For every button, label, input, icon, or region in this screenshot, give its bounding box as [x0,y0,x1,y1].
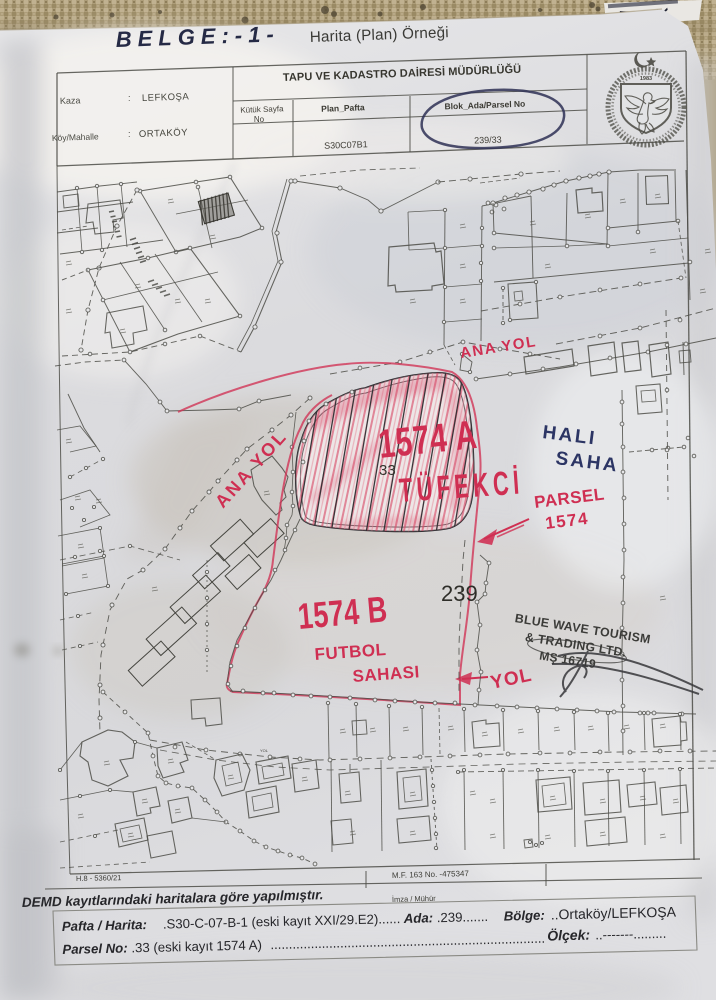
svg-text:.239.......: .239....... [437,909,489,925]
svg-text:No: No [254,115,265,124]
svg-text:1574 B: 1574 B [296,588,389,636]
svg-text:Parsel No:: Parsel No: [62,940,128,957]
svg-text:239/33: 239/33 [474,135,502,146]
svg-text:Köy/Mahalle: Köy/Mahalle [52,131,99,143]
svg-text:..Ortaköy/LEFKOŞA: ..Ortaköy/LEFKOŞA [551,904,677,923]
svg-text:.33 (eski kayıt 1574 A): .33 (eski kayıt 1574 A) [131,937,262,955]
svg-text:Plan_Pafta: Plan_Pafta [321,102,365,114]
svg-text:Ada:: Ada: [403,910,434,926]
svg-text::: : [128,93,131,103]
svg-text:Pafta / Harita:: Pafta / Harita: [62,917,147,934]
svg-text:1983: 1983 [640,76,652,82]
svg-text:S30C07B1: S30C07B1 [324,139,368,151]
svg-text:Kütük Sayfa: Kütük Sayfa [240,104,284,115]
svg-text:ORTAKÖY: ORTAKÖY [139,127,189,140]
svg-text:Bölge:: Bölge: [504,908,545,924]
svg-text:LEFKOŞA: LEFKOŞA [142,91,190,104]
svg-text:239: 239 [441,581,478,606]
svg-text:H.8 - 5360/21: H.8 - 5360/21 [76,873,122,883]
svg-text:Ölçek:: Ölçek: [547,927,590,944]
svg-text:YOL: YOL [260,748,269,753]
svg-text:..-------.........: ..-------......... [595,926,666,943]
svg-text:33: 33 [379,462,396,479]
svg-text::: : [128,129,131,139]
svg-text:Kaza: Kaza [60,95,81,106]
